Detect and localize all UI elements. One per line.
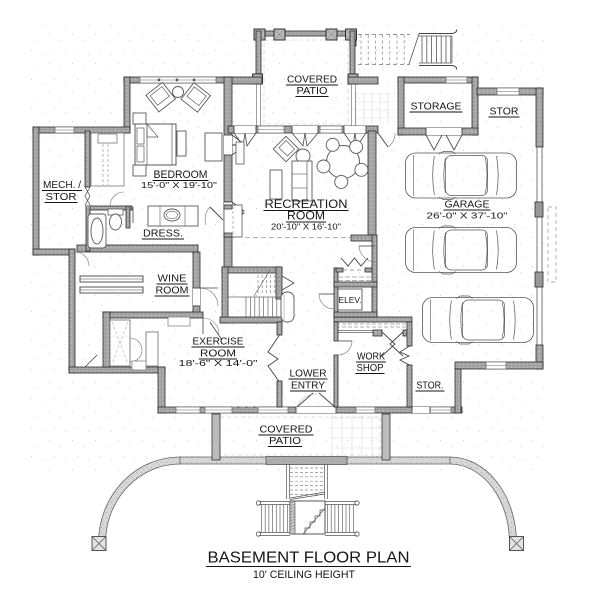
svg-text:STOR.: STOR. [417,380,444,392]
svg-text:COVERED: COVERED [260,424,313,436]
svg-text:WINE: WINE [158,273,187,285]
svg-text:15'-0" X 19'-10": 15'-0" X 19'-10" [141,180,217,190]
svg-text:STOR: STOR [46,191,77,203]
svg-text:26'-0" X 37'-10": 26'-0" X 37'-10" [427,211,508,221]
svg-text:RECREATION: RECREATION [265,199,348,211]
svg-text:STORAGE: STORAGE [411,101,462,113]
svg-text:GARAGE: GARAGE [445,199,490,211]
svg-text:COVERED: COVERED [287,74,337,86]
svg-text:18'-6" X 14'-0": 18'-6" X 14'-0" [179,358,258,368]
svg-text:ENTRY: ENTRY [291,380,325,392]
svg-text:LOWER: LOWER [290,368,327,380]
svg-text:BASEMENT FLOOR PLAN: BASEMENT FLOOR PLAN [208,550,410,567]
svg-text:ELEV.: ELEV. [339,296,362,305]
svg-text:WORK: WORK [357,351,385,363]
svg-text:SHOP: SHOP [357,362,384,374]
svg-text:20'-10" X 16'-10": 20'-10" X 16'-10" [271,222,341,232]
svg-text:DRESS.: DRESS. [143,228,183,240]
svg-text:EXERCISE: EXERCISE [193,336,244,348]
svg-text:STOR: STOR [490,106,519,118]
svg-text:PATIO: PATIO [269,435,301,447]
svg-text:PATIO: PATIO [297,85,328,97]
svg-text:MECH. /: MECH. / [43,179,81,191]
svg-text:ROOM: ROOM [156,285,189,297]
svg-text:10' CEILING HEIGHT: 10' CEILING HEIGHT [253,569,355,581]
